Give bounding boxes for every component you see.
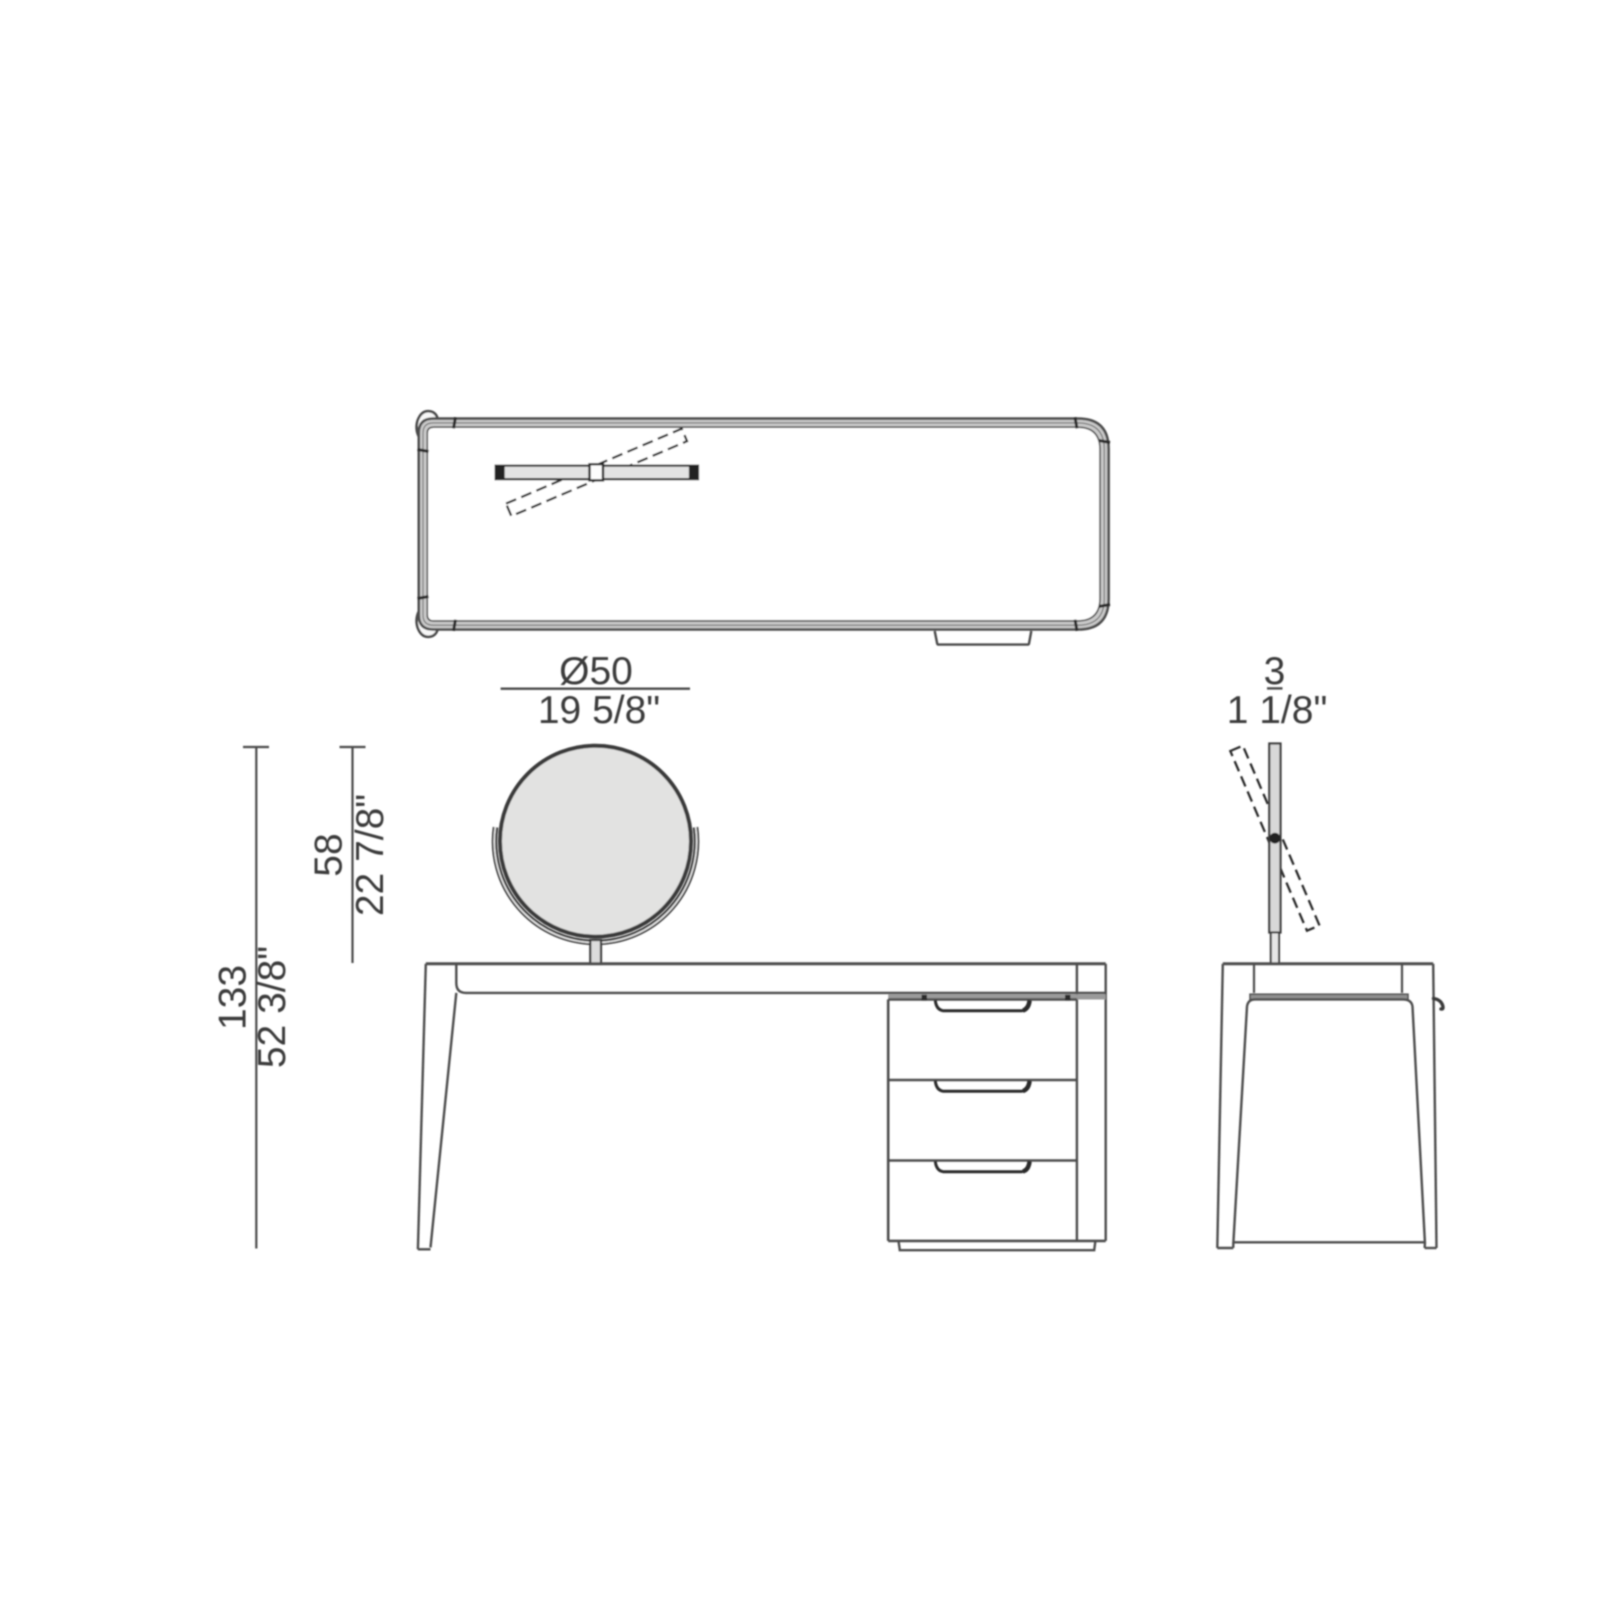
svg-text:22 7/8": 22 7/8" [349,794,392,916]
svg-text:58: 58 [308,833,351,876]
svg-text:3: 3 [1264,650,1286,693]
svg-text:133: 133 [212,965,255,1030]
svg-text:19 5/8": 19 5/8" [538,689,660,732]
svg-text:1 1/8": 1 1/8" [1227,689,1328,732]
svg-text:Ø50: Ø50 [559,650,633,693]
svg-text:52 3/8": 52 3/8" [251,946,294,1068]
